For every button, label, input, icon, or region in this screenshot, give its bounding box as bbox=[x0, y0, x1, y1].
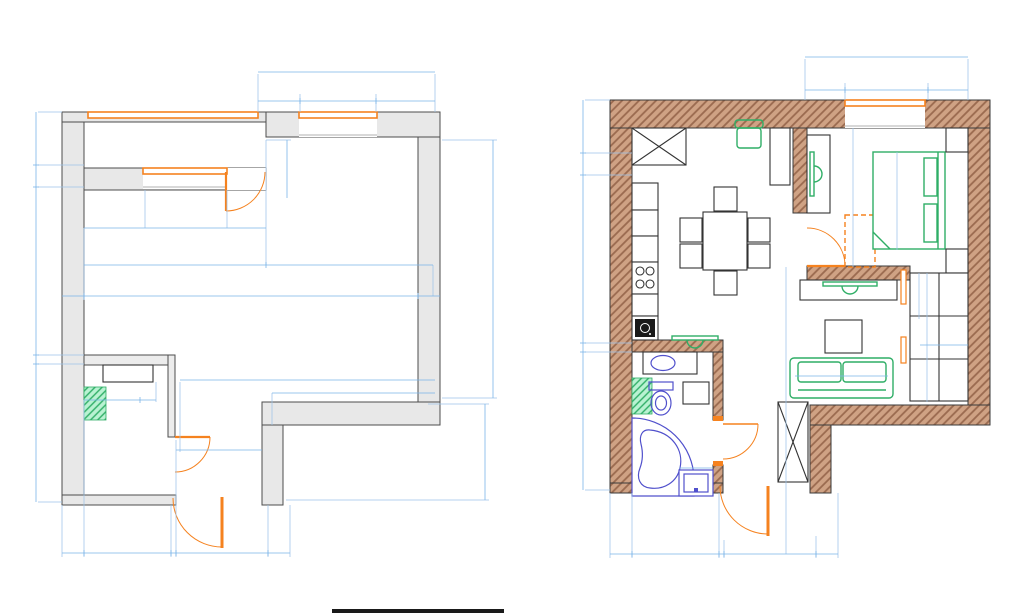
sofa bbox=[790, 358, 893, 398]
wall bbox=[810, 405, 990, 425]
window bbox=[299, 112, 377, 118]
vent-shaft bbox=[84, 387, 106, 420]
wall bbox=[262, 402, 440, 425]
page-edge-bar bbox=[332, 609, 504, 613]
tall-cabinet bbox=[770, 128, 790, 185]
stove bbox=[632, 262, 658, 294]
bathroom-partition bbox=[713, 465, 723, 483]
bathroom-door-arc bbox=[723, 424, 758, 459]
door-opening bbox=[227, 168, 266, 190]
bedroom-partition bbox=[793, 128, 807, 213]
toilet bbox=[649, 382, 673, 415]
bathroom bbox=[632, 352, 713, 496]
chair bbox=[748, 218, 770, 242]
partition bbox=[168, 355, 175, 437]
bedroom-door-arc bbox=[807, 228, 845, 266]
left-plan bbox=[33, 72, 497, 557]
kitchen-cabinet bbox=[632, 294, 658, 316]
bathroom-partition bbox=[713, 352, 723, 420]
nightstand bbox=[946, 128, 968, 152]
dining-table bbox=[703, 212, 747, 270]
kitchen-cabinet bbox=[632, 210, 658, 236]
bedroom bbox=[807, 128, 968, 273]
wall bbox=[262, 425, 283, 505]
opening-frame bbox=[901, 270, 906, 304]
kitchen bbox=[632, 120, 790, 348]
wall bbox=[810, 425, 831, 493]
wall bbox=[968, 128, 990, 408]
planned-opening-dashed bbox=[845, 215, 875, 267]
nightstand bbox=[946, 249, 968, 273]
chair bbox=[748, 244, 770, 268]
wall bbox=[610, 100, 990, 128]
washing-machine bbox=[683, 382, 709, 404]
door-jamb bbox=[713, 416, 723, 421]
window-opening bbox=[299, 118, 377, 137]
entry-door-arc bbox=[720, 486, 768, 534]
double-bed bbox=[873, 152, 945, 249]
built-in-cabinet bbox=[103, 365, 153, 382]
balcony-glazing bbox=[88, 112, 258, 118]
fridge bbox=[632, 183, 658, 210]
opening-frame bbox=[901, 337, 906, 363]
wall bbox=[62, 495, 176, 505]
bathroom-partition bbox=[632, 340, 723, 352]
chair bbox=[680, 218, 702, 242]
hallway bbox=[778, 402, 808, 482]
chair bbox=[714, 187, 737, 211]
bedroom-partition bbox=[807, 266, 910, 280]
right-plan bbox=[580, 57, 990, 558]
window bbox=[845, 100, 925, 106]
kitchen-cabinet bbox=[632, 236, 658, 262]
kitchen-sink bbox=[635, 319, 655, 337]
window bbox=[143, 168, 227, 174]
wall bbox=[418, 137, 440, 402]
living-room bbox=[790, 273, 968, 401]
floor-plan-drawing bbox=[0, 0, 1024, 615]
partition bbox=[84, 355, 175, 365]
tv-console bbox=[800, 280, 897, 300]
entry-door-arc bbox=[173, 498, 222, 547]
coffee-table bbox=[825, 320, 862, 353]
door-jamb bbox=[713, 461, 723, 466]
chair bbox=[680, 244, 702, 268]
window-opening bbox=[845, 106, 925, 128]
wall bbox=[62, 122, 84, 505]
wall bbox=[610, 128, 632, 493]
chair bbox=[714, 271, 737, 295]
measurement-plan-page bbox=[0, 0, 1024, 615]
